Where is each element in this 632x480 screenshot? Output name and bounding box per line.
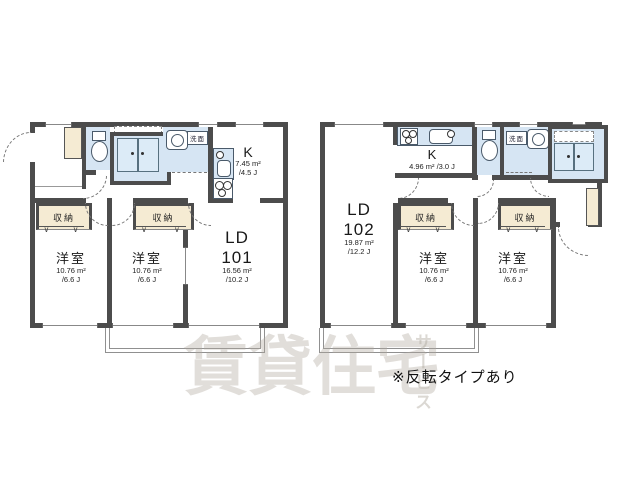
room-number: 102 bbox=[328, 220, 390, 240]
bedroom-label: 洋室 10.76 m² /6.6 J bbox=[482, 252, 544, 284]
note-text: ※反転タイプあり bbox=[392, 366, 518, 387]
window bbox=[334, 122, 384, 127]
door-handle-icon bbox=[567, 155, 570, 158]
room-tatami: /6.6 J bbox=[40, 276, 102, 285]
washstand-label: 洗面 bbox=[509, 133, 524, 143]
folding-door-icon bbox=[135, 226, 186, 235]
door-swing-icon bbox=[477, 180, 494, 197]
washbasin-bowl-icon bbox=[532, 133, 545, 146]
room-number: 101 bbox=[207, 248, 267, 268]
room-name: K bbox=[222, 144, 274, 160]
room-name: 洋室 bbox=[116, 252, 178, 267]
closet-label: 収納 bbox=[53, 211, 75, 224]
entrance-door-swing-icon bbox=[558, 227, 589, 256]
washbasin-bowl-icon bbox=[171, 134, 184, 147]
bathroom bbox=[110, 132, 171, 185]
door-swing-icon bbox=[478, 203, 499, 224]
bath-door-panel bbox=[117, 138, 138, 172]
unit-101: 洗面 収納 収納 K 7.45 m² /4.5 J LD 101 16. bbox=[30, 122, 288, 328]
bath-door-panel bbox=[138, 138, 159, 172]
door-swing-icon bbox=[112, 203, 135, 226]
washroom-door-icon bbox=[506, 172, 532, 174]
wall bbox=[260, 198, 283, 203]
floorplan-canvas: 洗面 収納 収納 K 7.45 m² /4.5 J LD 101 16. bbox=[0, 0, 632, 480]
room-tatami: /10.2 J bbox=[207, 276, 267, 285]
room-name: 洋室 bbox=[403, 252, 465, 267]
washbasin-icon bbox=[527, 129, 549, 149]
wall bbox=[283, 122, 288, 328]
toilet-bowl-icon bbox=[481, 140, 498, 161]
room-name: LD bbox=[207, 228, 267, 248]
window bbox=[42, 323, 98, 328]
shoe-cabinet bbox=[586, 188, 599, 226]
room-tatami: /6.6 J bbox=[116, 276, 178, 285]
room-name: 洋室 bbox=[40, 252, 102, 267]
door-handle-icon bbox=[577, 155, 580, 158]
room-name: K bbox=[400, 148, 464, 163]
door-swing-icon bbox=[451, 203, 474, 226]
toilet-tank-icon bbox=[482, 130, 496, 140]
door-swing-icon bbox=[530, 178, 549, 197]
genkan-step-line bbox=[35, 186, 82, 187]
window bbox=[235, 122, 264, 127]
bathroom bbox=[548, 125, 608, 183]
room-area: 4.96 m² /3.0 J bbox=[400, 163, 464, 172]
kitchen-label: K 7.45 m² /4.5 J bbox=[222, 144, 274, 177]
door-handle-icon bbox=[131, 152, 134, 155]
toilet-tank-icon bbox=[92, 131, 106, 141]
bedroom-label: 洋室 10.76 m² /6.6 J bbox=[116, 252, 178, 284]
bath-door-panel bbox=[554, 143, 574, 171]
entrance-door-swing-icon bbox=[3, 132, 31, 163]
burner-icon bbox=[218, 189, 226, 197]
interior-window bbox=[183, 247, 188, 285]
unit-102: 洗面 収納 収納 K 4.96 m² bbox=[320, 122, 602, 328]
living-label: LD 101 16.56 m² /10.2 J bbox=[207, 228, 267, 284]
stove-icon bbox=[400, 128, 418, 145]
closet-label: 収納 bbox=[415, 211, 437, 224]
kitchen-counter bbox=[397, 127, 473, 146]
room-tatami: /6.6 J bbox=[403, 276, 465, 285]
kitchen-label: K 4.96 m² /3.0 J bbox=[400, 148, 464, 172]
closet-label: 収納 bbox=[514, 211, 536, 224]
washstand-label: 洗面 bbox=[190, 133, 205, 143]
faucet-icon bbox=[447, 130, 455, 138]
door-swing-icon bbox=[83, 175, 107, 199]
room-name: LD bbox=[328, 200, 390, 220]
washroom-door-icon bbox=[172, 172, 207, 174]
washstand-tag: 洗面 bbox=[187, 131, 208, 145]
window bbox=[485, 323, 547, 328]
wall bbox=[320, 122, 325, 328]
room-tatami: /4.5 J bbox=[222, 169, 274, 178]
folding-door-icon bbox=[400, 226, 446, 235]
closet-label: 収納 bbox=[152, 211, 174, 224]
stove-icon bbox=[213, 178, 233, 199]
door-swing-icon bbox=[398, 178, 419, 199]
folding-door-icon bbox=[38, 226, 84, 235]
bedroom-label: 洋室 10.76 m² /6.6 J bbox=[403, 252, 465, 284]
bedroom-label: 洋室 10.76 m² /6.6 J bbox=[40, 252, 102, 284]
washstand-tag: 洗面 bbox=[506, 131, 527, 145]
room-tatami: /6.6 J bbox=[482, 276, 544, 285]
burner-icon bbox=[405, 137, 412, 144]
shoe-cabinet bbox=[64, 127, 82, 159]
toilet-bowl-icon bbox=[91, 141, 108, 162]
room-tatami: /12.2 J bbox=[328, 248, 390, 257]
door-handle-icon bbox=[141, 152, 144, 155]
folding-door-icon bbox=[500, 226, 545, 235]
washbasin-icon bbox=[166, 130, 188, 150]
bath-vent-icon bbox=[554, 131, 594, 142]
burner-icon bbox=[223, 181, 232, 190]
room-name: 洋室 bbox=[482, 252, 544, 267]
watermark-text: 賃貸住宅 bbox=[184, 316, 440, 408]
living-label: LD 102 19.87 m² /12.2 J bbox=[328, 200, 390, 256]
